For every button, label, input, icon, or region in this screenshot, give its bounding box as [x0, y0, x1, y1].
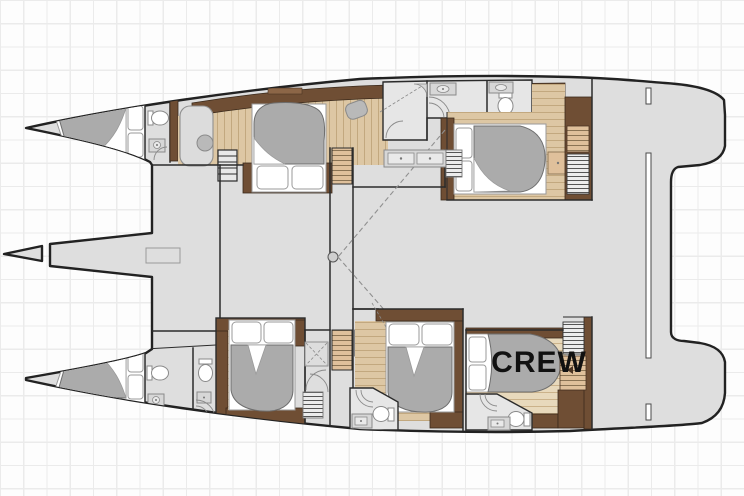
pillow: [128, 348, 143, 372]
wood-floor: [532, 84, 565, 114]
pillow: [469, 337, 486, 362]
toilet-icon: [373, 407, 389, 422]
shelf-inset: [268, 88, 302, 94]
toilet-icon: [199, 365, 213, 382]
side-table: [197, 135, 213, 151]
foredeck-locker-hatch: [146, 248, 180, 263]
floor-border: [430, 412, 463, 428]
toilet-icon: [152, 366, 169, 380]
pillow: [232, 322, 261, 343]
sink-basin: [496, 85, 507, 91]
stairs-down-port: [332, 148, 352, 184]
toilet-tank: [524, 413, 530, 426]
toilet-icon: [498, 98, 513, 115]
companionway-stairs: [567, 154, 589, 194]
bottom-hull-cabin-mid: [350, 309, 463, 430]
bowsprit-tip: [4, 246, 42, 261]
pillow: [128, 133, 143, 157]
pillow: [257, 166, 288, 189]
floor-border: [376, 309, 463, 321]
stairs-down-starboard: [332, 330, 352, 370]
deck-step-slit: [646, 404, 651, 420]
toilet-icon: [152, 111, 169, 125]
deck-step-slit: [646, 88, 651, 104]
stairs-to-deck: [567, 126, 589, 152]
pillow: [422, 324, 452, 345]
mast-post: [328, 252, 338, 262]
pillow: [128, 106, 143, 130]
pillow: [389, 324, 419, 345]
pillow: [128, 375, 143, 399]
bottom-hull-cabin-forward: [216, 318, 305, 426]
galley-shelves: [446, 150, 462, 177]
top-hull-forward-cabin: [54, 103, 145, 160]
toilet-tank: [199, 359, 212, 364]
pillow: [469, 365, 486, 390]
floor-border: [558, 390, 586, 428]
crew-label: CREW: [491, 346, 587, 379]
catamaran-deck-plan: CREW: [0, 0, 744, 496]
bottom-hull-forward-cabin: [54, 346, 145, 403]
locker-vents: [303, 392, 323, 418]
pillow: [292, 166, 323, 189]
pillow: [264, 322, 293, 343]
graph-paper-background: CREW: [0, 0, 744, 496]
cockpit-divider-slit: [646, 153, 651, 358]
wardrobe-strip: [170, 99, 178, 161]
